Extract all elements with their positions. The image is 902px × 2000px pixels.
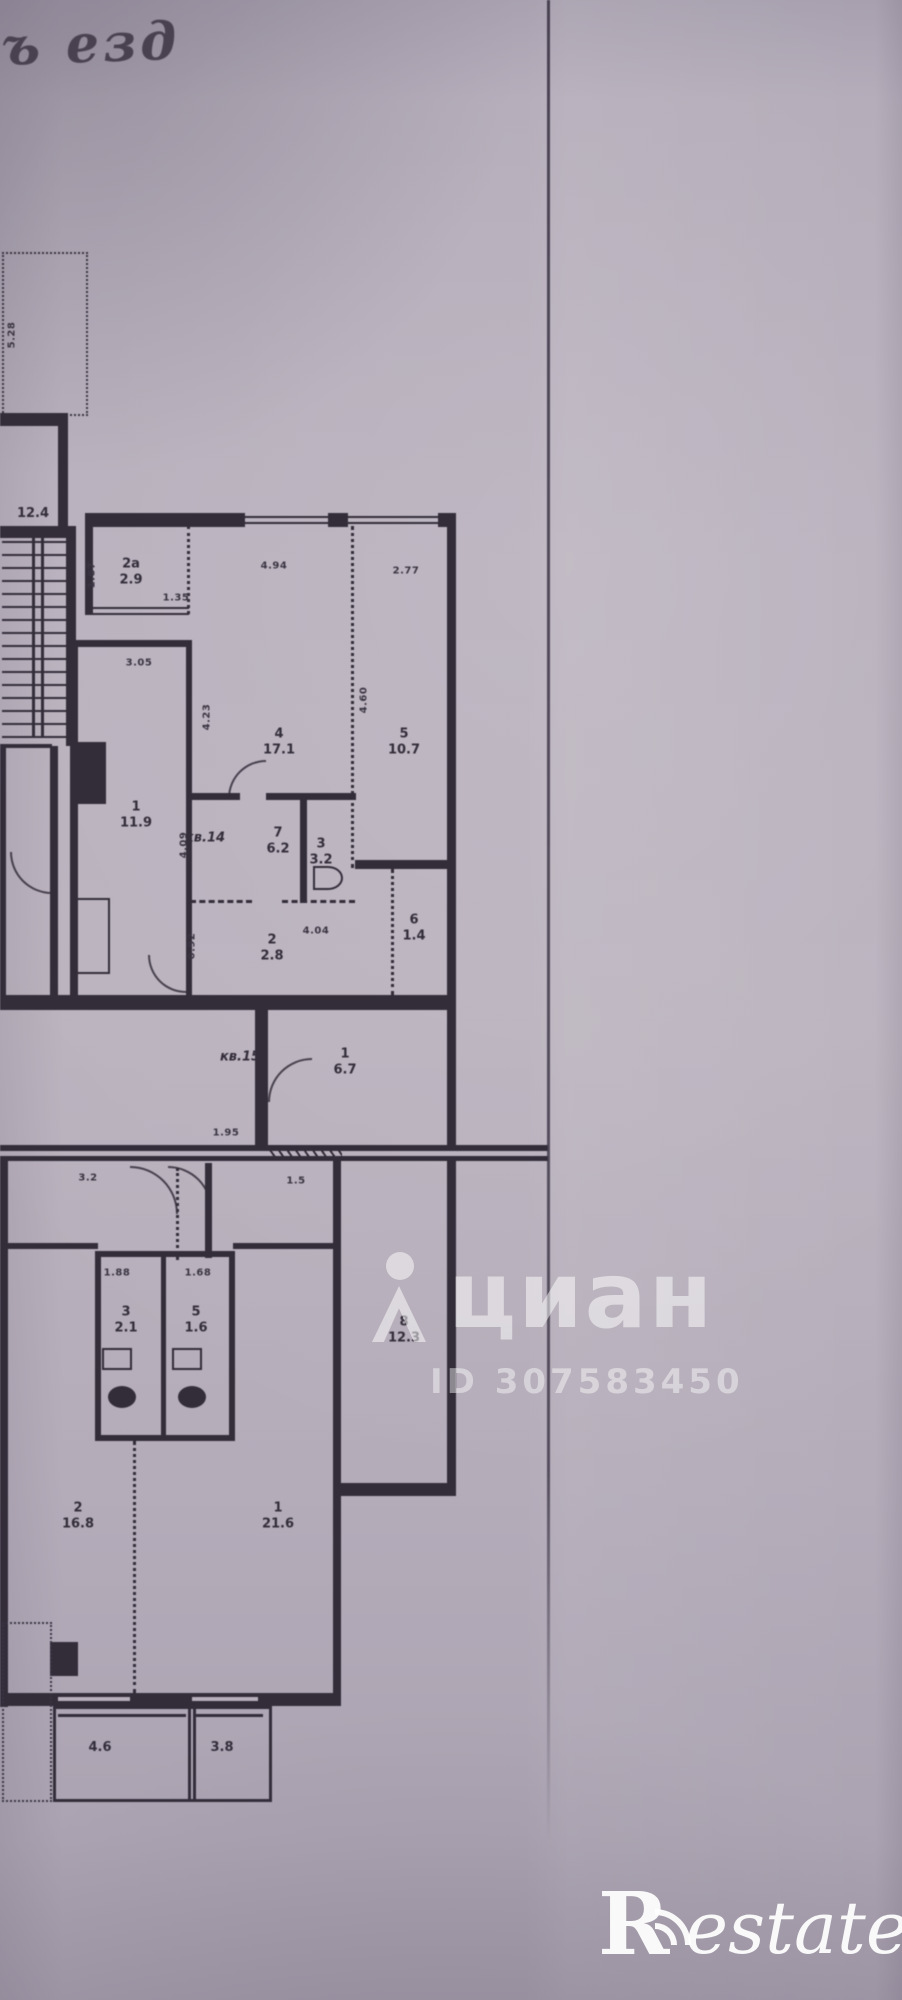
wall <box>300 798 307 903</box>
dimension-label: 3.05 <box>126 658 153 669</box>
wall <box>328 513 348 527</box>
dimension-label: 4.04 <box>303 926 330 937</box>
wall <box>233 1243 333 1249</box>
wall <box>70 640 192 647</box>
wall <box>266 793 356 800</box>
wall <box>0 746 6 996</box>
window <box>346 516 440 524</box>
room-label: 33.2 <box>309 836 332 867</box>
bottom-wall <box>0 995 455 1010</box>
wall <box>205 1163 212 1258</box>
loggia-window <box>85 607 189 615</box>
room-label: 12.4 <box>17 506 49 522</box>
apartment-number-label: кв.15 <box>220 1050 260 1065</box>
floor-plan: 2а2.9111.9417.1510.776.233.222.861.416.7… <box>0 0 902 2000</box>
room-label: 22.8 <box>260 932 283 963</box>
dimension-label: 1.5 <box>286 1176 305 1187</box>
cian-id-watermark: ID 307583450 <box>430 1362 744 1402</box>
cian-person-icon <box>386 1252 414 1280</box>
duct-shaft <box>50 1642 78 1676</box>
wall <box>85 513 245 527</box>
window <box>58 1695 130 1703</box>
dimension-label: 1.88 <box>104 1268 131 1279</box>
partition-dotted <box>133 1441 136 1693</box>
closet-dashed-wall <box>282 900 355 903</box>
wall <box>58 413 68 531</box>
wall <box>229 1251 235 1441</box>
dimension-label: 5.28 <box>7 322 18 349</box>
room-label: 4.6 <box>88 1740 111 1756</box>
door-arc <box>10 852 52 894</box>
room-label: 16.7 <box>333 1046 356 1077</box>
room-label: 216.8 <box>62 1500 94 1531</box>
stair-stringer <box>32 538 35 738</box>
restate-logo: R estate <box>598 1888 902 1961</box>
dimension-label: 3.2 <box>78 1173 97 1184</box>
sill-line <box>193 1714 263 1717</box>
dimension-label: 4.23 <box>202 704 213 731</box>
wall <box>0 526 76 538</box>
door-arc <box>228 760 266 798</box>
dimension-label: 0.92 <box>187 933 198 960</box>
dimension-label: 4.94 <box>261 561 288 572</box>
room-label: 76.2 <box>266 825 289 856</box>
staircase <box>2 538 76 738</box>
wall-hatch <box>268 1145 342 1161</box>
toilet-icon <box>178 1386 206 1408</box>
stair-stringer <box>41 538 44 738</box>
dimension-label: 1.68 <box>185 1268 212 1279</box>
toilet-icon <box>108 1386 136 1408</box>
wall <box>255 1010 268 1150</box>
sink-icon <box>172 1348 202 1370</box>
door-arc <box>268 1058 312 1102</box>
room-label: 510.7 <box>388 726 420 757</box>
room-label: 2а2.9 <box>119 556 142 587</box>
dimension-label: 1.35 <box>163 593 190 604</box>
cian-watermark: циан <box>448 1252 714 1339</box>
restate-signal-icon <box>655 1901 689 1961</box>
dimension-label: 2.77 <box>393 566 420 577</box>
toilet-icon <box>313 866 343 890</box>
dimension-label: 4.60 <box>359 687 370 714</box>
restate-word: estate <box>685 1896 902 1961</box>
bathtub-icon <box>76 898 110 974</box>
floor-plan-photo: ъ езд <box>0 0 902 2000</box>
door-arc <box>148 955 186 993</box>
duct-shaft <box>72 742 106 804</box>
balcony <box>53 1706 196 1802</box>
room-label: 121.6 <box>262 1500 294 1531</box>
entry-step-line <box>0 744 52 748</box>
wall <box>95 1251 101 1441</box>
dimension-label: 1.95 <box>213 1128 240 1139</box>
room-label: 417.1 <box>263 726 295 757</box>
room-label: 3.8 <box>210 1740 233 1756</box>
apartment-number-label: кв.14 <box>185 831 225 846</box>
sink-icon <box>102 1348 132 1370</box>
wall <box>340 1483 456 1496</box>
partition-dotted <box>391 869 394 995</box>
wall <box>333 1161 341 1491</box>
wall <box>355 860 455 869</box>
window <box>245 516 330 524</box>
partition-dotted <box>176 1168 179 1260</box>
wall <box>8 1243 98 1249</box>
balcony-outline <box>2 1622 52 1802</box>
wall <box>333 1491 341 1706</box>
sill-line <box>58 1714 186 1717</box>
wall <box>447 513 456 1147</box>
closet-dashed-wall <box>190 900 252 903</box>
wall <box>161 1251 166 1441</box>
room-label: 51.6 <box>184 1304 207 1335</box>
room-label: 61.4 <box>402 912 425 943</box>
partition-dotted <box>351 526 354 868</box>
window <box>192 1695 258 1703</box>
dimension-label: 1.87 <box>87 562 98 589</box>
room-label: 111.9 <box>120 799 152 830</box>
room-label: 32.1 <box>114 1304 137 1335</box>
